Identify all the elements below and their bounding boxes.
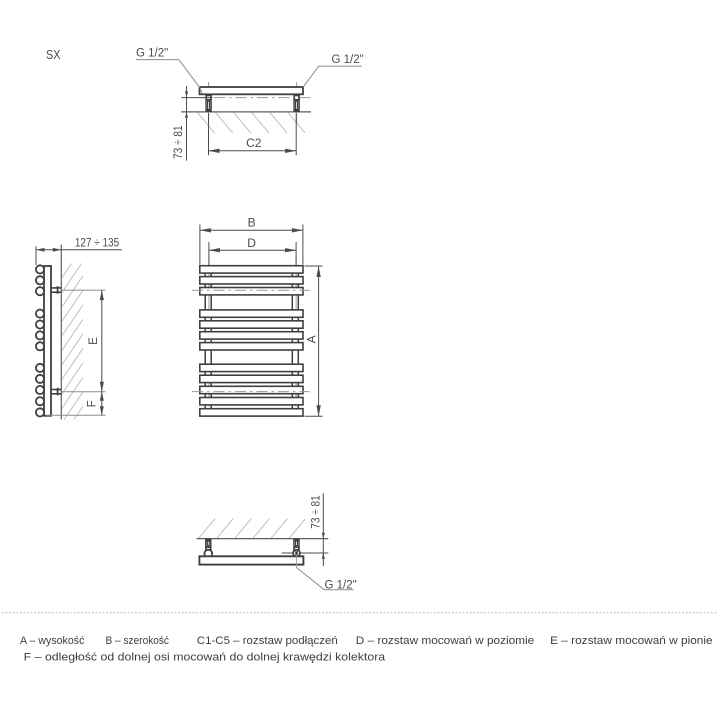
svg-text:73 ÷ 81: 73 ÷ 81 xyxy=(311,495,323,529)
svg-text:E: E xyxy=(88,337,100,345)
svg-text:D: D xyxy=(247,236,256,250)
svg-text:C2: C2 xyxy=(246,136,262,150)
svg-text:A: A xyxy=(305,335,319,343)
svg-text:F – odległość od dolnej osi m: F – odległość od dolnej osi mocowań do d… xyxy=(24,652,386,664)
svg-text:G 1/2": G 1/2" xyxy=(325,579,357,591)
svg-text:C1-C5 – rozstaw podłączeń: C1-C5 – rozstaw podłączeń xyxy=(197,635,338,647)
svg-text:127 ÷ 135: 127 ÷ 135 xyxy=(75,238,119,250)
svg-text:B: B xyxy=(248,216,256,230)
svg-text:SX: SX xyxy=(46,47,61,62)
svg-text:D – rozstaw mocowań w poziomie: D – rozstaw mocowań w poziomie xyxy=(356,635,534,647)
svg-text:E – rozstaw mocowań w pionie: E – rozstaw mocowań w pionie xyxy=(550,635,713,647)
svg-text:G 1/2": G 1/2" xyxy=(332,54,364,66)
svg-text:73 ÷ 81: 73 ÷ 81 xyxy=(173,125,185,159)
svg-text:G 1/2": G 1/2" xyxy=(136,48,168,60)
svg-text:B – szerokość: B – szerokość xyxy=(106,635,170,647)
svg-text:A – wysokość: A – wysokość xyxy=(20,635,85,647)
svg-text:F: F xyxy=(87,400,99,407)
